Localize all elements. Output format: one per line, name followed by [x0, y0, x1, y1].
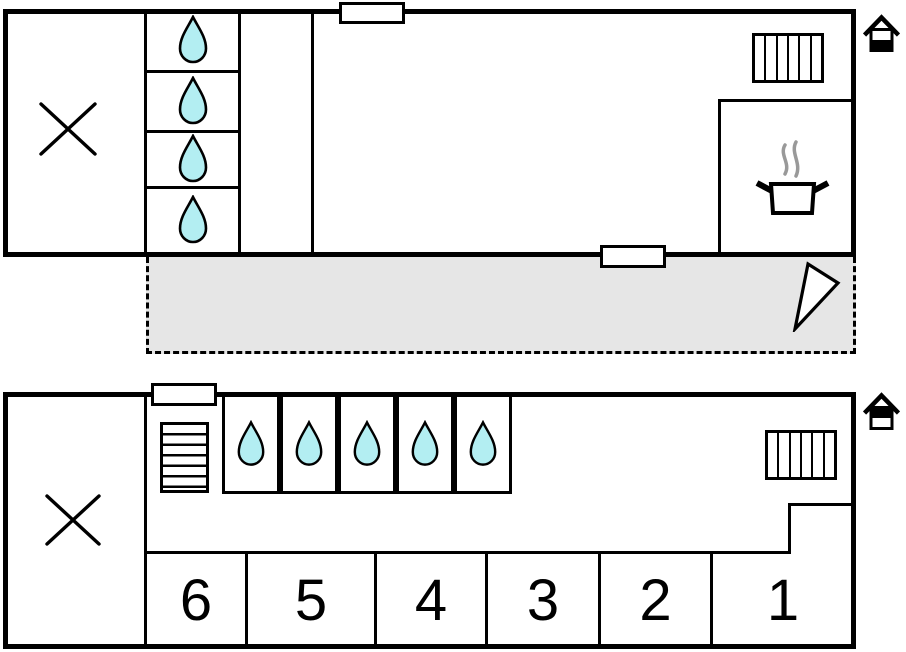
- steam-icon: [794, 142, 797, 176]
- stairs-icon: [160, 422, 209, 493]
- room-number-2: 2: [601, 554, 710, 646]
- radiator-slat: [766, 36, 777, 80]
- drop-cell: [454, 397, 512, 494]
- notch-wall: [788, 503, 856, 506]
- radiator-slat: [813, 433, 824, 477]
- radiator-icon: [752, 33, 824, 83]
- room-number-3: 3: [488, 554, 598, 646]
- wall-segment: [144, 70, 241, 73]
- kitchen-wall: [718, 99, 721, 257]
- house-upper-floor-icon: [863, 392, 900, 432]
- drop-cell: [338, 397, 396, 494]
- water-drop-icon: [410, 420, 440, 468]
- radiator-slat: [778, 36, 789, 80]
- radiator-slat: [779, 433, 790, 477]
- terrace-area: [146, 257, 856, 354]
- radiator-slat: [802, 433, 813, 477]
- wall-segment: [238, 9, 241, 257]
- window-marker: [339, 2, 405, 24]
- radiator-icon: [765, 430, 837, 480]
- notch-wall: [788, 503, 791, 554]
- plan-top-outline: [3, 9, 856, 257]
- x-room-marker: [43, 492, 103, 548]
- cooking-pot-icon: [752, 138, 832, 220]
- window-marker: [600, 245, 666, 268]
- radiator-slat: [800, 36, 811, 80]
- floor-plan-canvas: 6 5 4 3 2 1: [0, 0, 906, 652]
- water-drop-icon: [294, 420, 324, 468]
- radiator-slat: [791, 433, 802, 477]
- water-drop-icon: [236, 420, 266, 468]
- wall-segment: [144, 9, 147, 257]
- room-number-4: 4: [377, 554, 485, 646]
- drop-cell: [177, 195, 209, 245]
- x-room-marker: [37, 100, 99, 158]
- water-drop-icon: [177, 134, 209, 184]
- house-ground-floor-icon: [863, 14, 900, 54]
- radiator-slat: [812, 36, 821, 80]
- north-arrow-icon: [788, 260, 842, 332]
- kitchen-wall: [718, 99, 856, 102]
- wall-segment: [144, 186, 241, 189]
- drop-cell: [396, 397, 454, 494]
- steam-icon: [783, 145, 786, 174]
- drop-cell: [177, 134, 209, 184]
- window-marker: [151, 383, 217, 406]
- radiator-slat: [768, 433, 779, 477]
- water-drop-icon: [177, 195, 209, 245]
- drop-cell: [177, 76, 209, 126]
- radiator-slat: [825, 433, 834, 477]
- drop-cell: [222, 397, 280, 494]
- drop-cell: [280, 397, 338, 494]
- radiator-slat: [755, 36, 766, 80]
- wall-segment: [311, 9, 314, 257]
- water-drop-icon: [177, 15, 209, 65]
- drop-cell: [177, 15, 209, 65]
- room-number-6: 6: [147, 554, 245, 646]
- room-number-5: 5: [248, 554, 374, 646]
- water-drop-icon: [177, 76, 209, 126]
- water-drop-icon: [352, 420, 382, 468]
- pot-body: [771, 184, 814, 213]
- wall-segment: [144, 130, 241, 133]
- room-number-1: 1: [713, 554, 853, 646]
- radiator-slat: [789, 36, 800, 80]
- water-drop-icon: [468, 420, 498, 468]
